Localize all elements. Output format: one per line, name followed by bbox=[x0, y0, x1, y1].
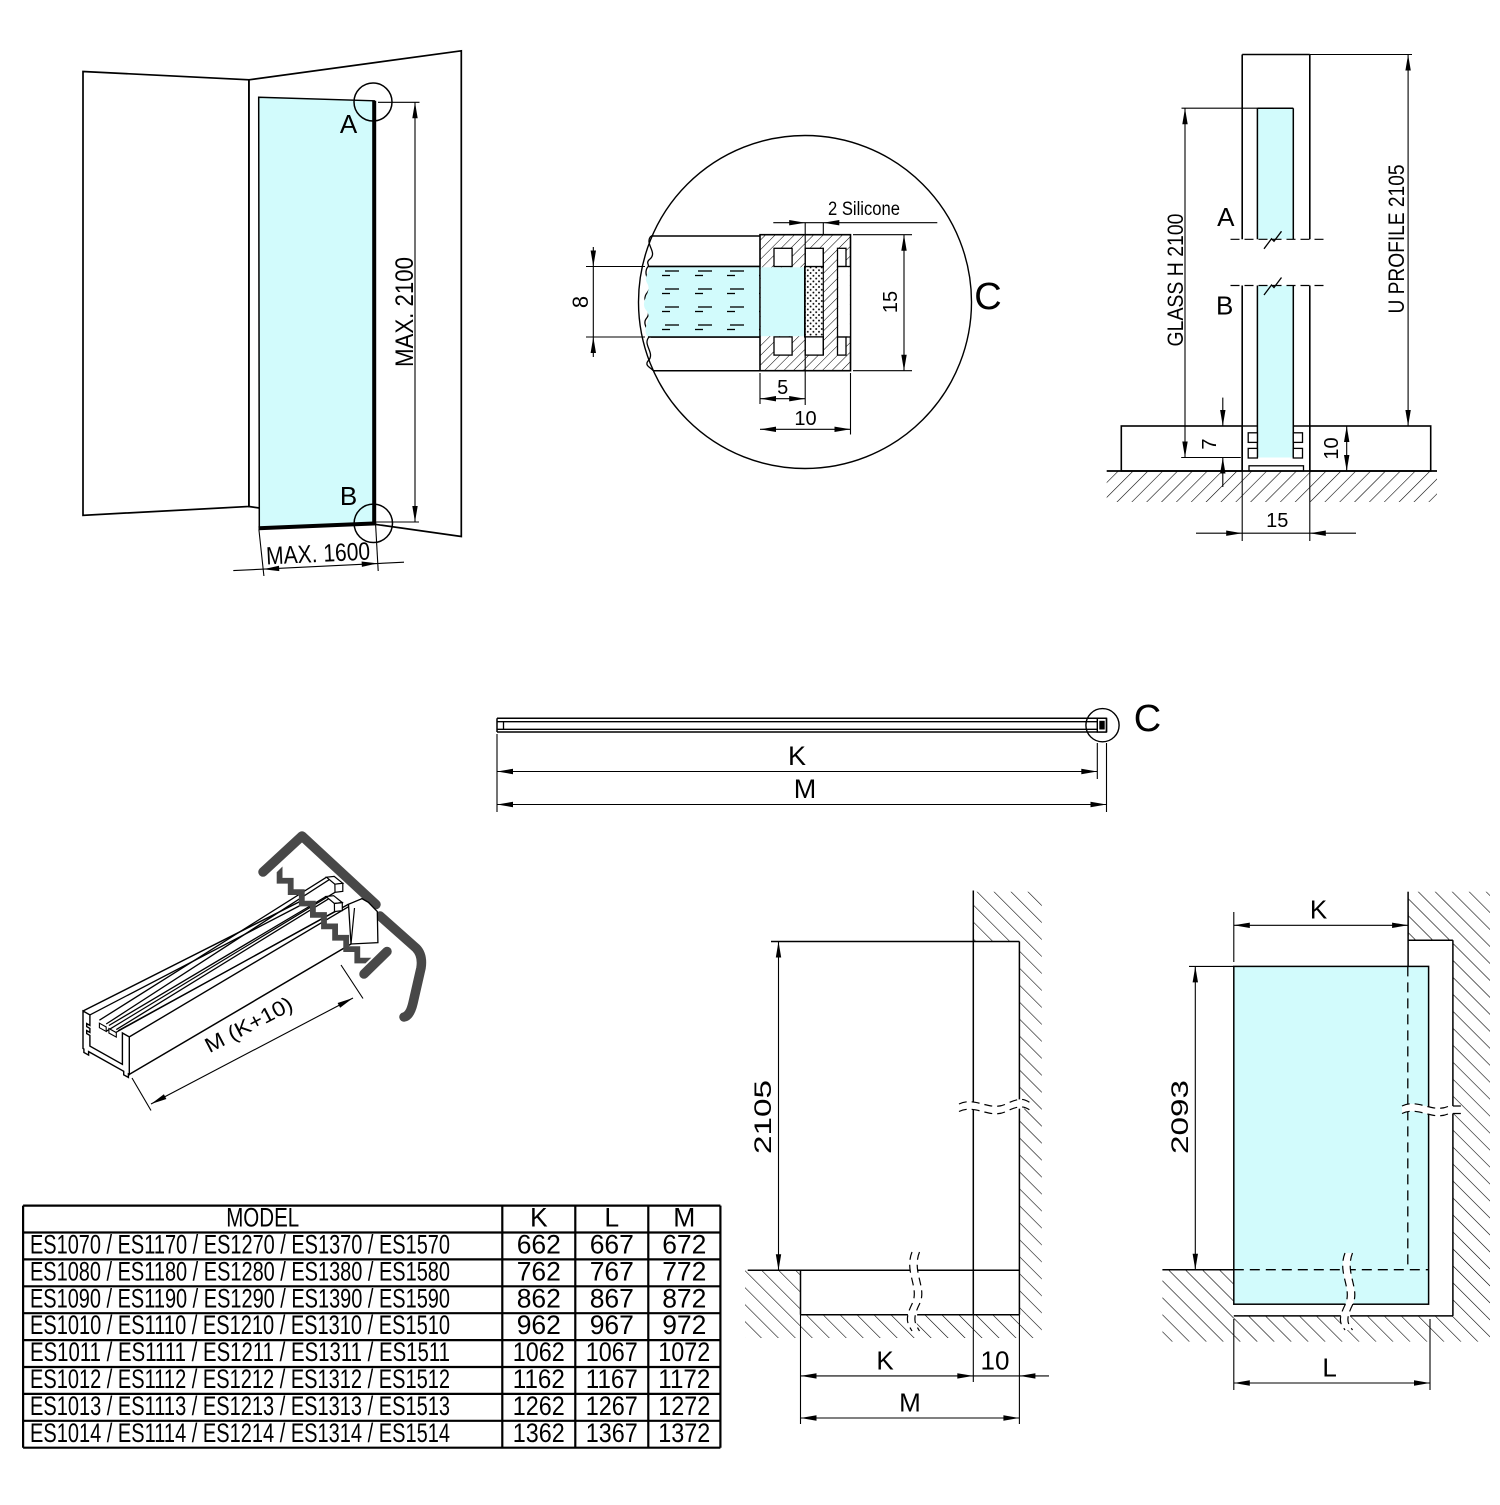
svg-text:ES1014 / ES1114 / ES1214 / ES1: ES1014 / ES1114 / ES1214 / ES1314 / ES15… bbox=[30, 1418, 450, 1448]
svg-text:8: 8 bbox=[568, 296, 593, 308]
svg-text:ES1090 / ES1190 / ES1290 / ES1: ES1090 / ES1190 / ES1290 / ES1390 / ES15… bbox=[30, 1283, 450, 1313]
svg-text:ES1070 / ES1170 / ES1270 / ES1: ES1070 / ES1170 / ES1270 / ES1370 / ES15… bbox=[30, 1230, 450, 1260]
svg-text:M: M bbox=[673, 1203, 695, 1233]
svg-text:1272: 1272 bbox=[658, 1391, 710, 1421]
svg-text:L: L bbox=[604, 1203, 619, 1233]
svg-text:ES1012 / ES1112 / ES1212 / ES1: ES1012 / ES1112 / ES1212 / ES1312 / ES15… bbox=[30, 1364, 450, 1394]
svg-text:662: 662 bbox=[517, 1230, 561, 1260]
svg-text:7: 7 bbox=[1199, 438, 1221, 449]
svg-text:2093: 2093 bbox=[1167, 1080, 1194, 1154]
svg-text:1362: 1362 bbox=[513, 1418, 565, 1448]
svg-text:10: 10 bbox=[794, 408, 816, 430]
svg-text:1172: 1172 bbox=[658, 1364, 710, 1394]
svg-text:862: 862 bbox=[517, 1283, 561, 1313]
svg-text:K: K bbox=[788, 741, 806, 771]
svg-text:L: L bbox=[1322, 1353, 1336, 1383]
svg-text:2 Silicone: 2 Silicone bbox=[828, 199, 900, 220]
svg-text:772: 772 bbox=[662, 1256, 706, 1286]
svg-text:B: B bbox=[1216, 291, 1233, 321]
svg-text:962: 962 bbox=[517, 1310, 561, 1340]
svg-text:1167: 1167 bbox=[586, 1364, 638, 1394]
svg-text:C: C bbox=[974, 276, 1001, 318]
svg-text:1367: 1367 bbox=[586, 1418, 638, 1448]
svg-text:M: M bbox=[794, 774, 817, 804]
svg-text:ES1010 / ES1110 / ES1210 / ES1: ES1010 / ES1110 / ES1210 / ES1310 / ES15… bbox=[30, 1310, 450, 1340]
svg-text:15: 15 bbox=[1266, 510, 1288, 532]
svg-text:767: 767 bbox=[590, 1256, 634, 1286]
svg-text:1072: 1072 bbox=[658, 1337, 710, 1367]
svg-text:M: M bbox=[899, 1388, 921, 1418]
svg-text:A: A bbox=[1217, 202, 1235, 232]
svg-text:1372: 1372 bbox=[658, 1418, 710, 1448]
svg-text:667: 667 bbox=[590, 1230, 634, 1260]
svg-text:ES1080 / ES1180 / ES1280 / ES1: ES1080 / ES1180 / ES1280 / ES1380 / ES15… bbox=[30, 1256, 450, 1286]
svg-text:10: 10 bbox=[981, 1346, 1010, 1376]
svg-text:K: K bbox=[530, 1203, 548, 1233]
svg-text:ES1011 / ES1111 / ES1211 / ES1: ES1011 / ES1111 / ES1211 / ES1311 / ES15… bbox=[30, 1337, 450, 1367]
svg-text:K: K bbox=[876, 1346, 894, 1376]
svg-text:872: 872 bbox=[662, 1283, 706, 1313]
svg-text:762: 762 bbox=[517, 1256, 561, 1286]
svg-text:MODEL: MODEL bbox=[226, 1203, 299, 1233]
svg-text:MAX. 2100: MAX. 2100 bbox=[391, 257, 419, 367]
svg-text:1262: 1262 bbox=[513, 1391, 565, 1421]
svg-text:A: A bbox=[340, 109, 358, 139]
svg-text:5: 5 bbox=[777, 377, 788, 399]
svg-text:K: K bbox=[1310, 895, 1328, 925]
svg-text:MAX. 1600: MAX. 1600 bbox=[265, 537, 370, 570]
svg-text:1267: 1267 bbox=[586, 1391, 638, 1421]
svg-text:1067: 1067 bbox=[586, 1337, 638, 1367]
svg-text:ES1013 / ES1113 / ES1213 / ES1: ES1013 / ES1113 / ES1213 / ES1313 / ES15… bbox=[30, 1391, 450, 1421]
svg-text:867: 867 bbox=[590, 1283, 634, 1313]
svg-text:GLASS H 2100: GLASS H 2100 bbox=[1163, 214, 1188, 347]
svg-text:672: 672 bbox=[662, 1230, 706, 1260]
svg-text:967: 967 bbox=[590, 1310, 634, 1340]
svg-text:1062: 1062 bbox=[513, 1337, 565, 1367]
svg-text:972: 972 bbox=[662, 1310, 706, 1340]
svg-text:2105: 2105 bbox=[750, 1080, 777, 1154]
svg-text:10: 10 bbox=[1321, 437, 1343, 459]
svg-text:15: 15 bbox=[880, 291, 902, 313]
svg-text:1162: 1162 bbox=[513, 1364, 565, 1394]
svg-text:C: C bbox=[1134, 698, 1161, 740]
svg-text:U PROFILE 2105: U PROFILE 2105 bbox=[1384, 165, 1409, 314]
svg-text:B: B bbox=[340, 481, 357, 511]
